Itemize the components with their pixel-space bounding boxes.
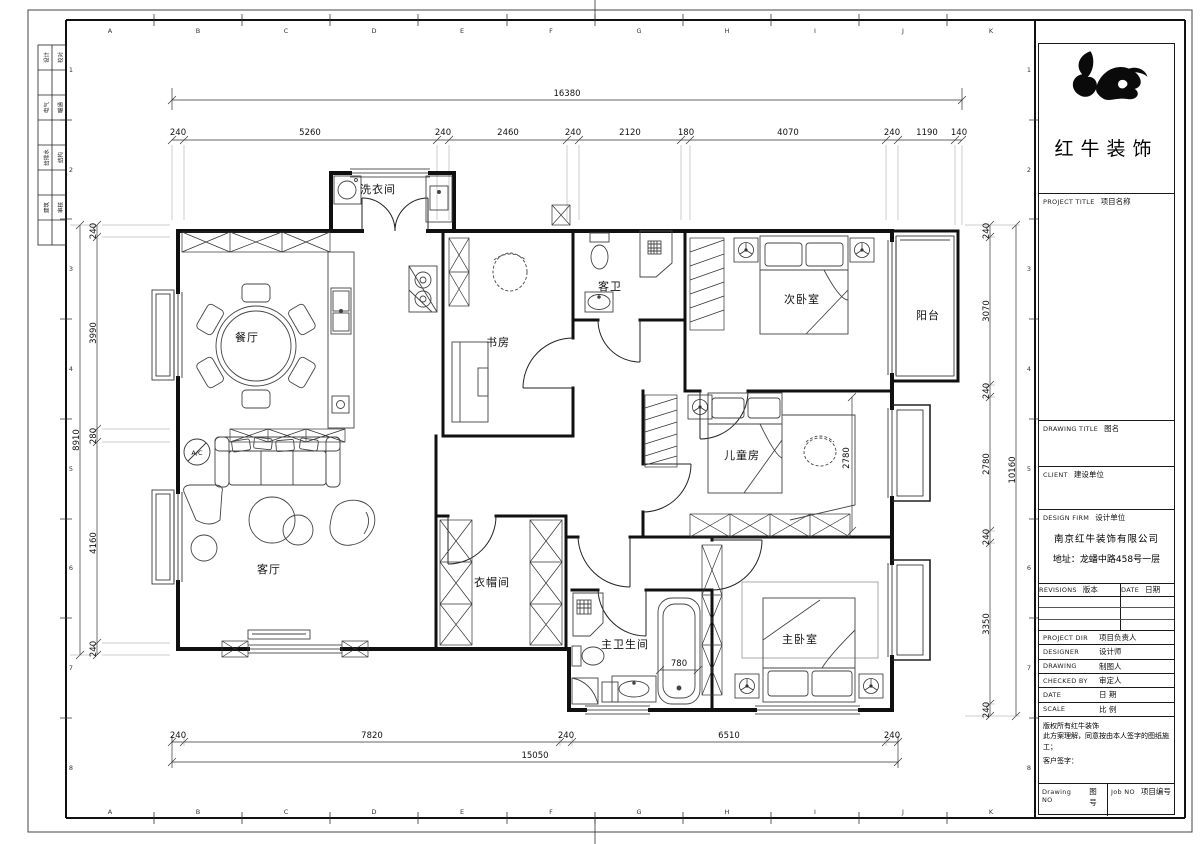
room-label-study: 书房 [486,336,510,349]
dining-chair [195,284,316,408]
grid-letter: F [549,808,553,816]
dim-left-seg: 280 [89,428,99,444]
window-left-lower [152,490,182,584]
signoff-label: 暖通 [57,102,65,114]
grid-letters-top: A B C D E F G H I J K [108,27,994,35]
bay-window-children [888,405,930,501]
children-chair [804,436,836,466]
grid-number: 1 [69,66,73,74]
job-no-en: Job NO [1111,788,1135,796]
dim-top-seg: 140 [951,128,967,138]
info-label-cn: 制图人 [1099,661,1122,672]
signoff-label: 电气 [43,102,51,114]
info-row-date: DATE 日 期 [1039,688,1174,702]
job-no-cn: 项目编号 [1141,786,1171,797]
study-desk [452,342,488,422]
title-block: 红牛装饰 PROJECT TITLE 项目名称 DRAWING TITLE 图名… [1038,43,1175,815]
brand-name: 红牛装饰 [1054,134,1158,161]
grid-number: 6 [1027,564,1031,572]
grid-number: 8 [1027,764,1031,772]
signoff-strip: 设计 校对 电气 暖通 给排水 结构 建筑 审核 [38,45,66,245]
grid-number: 7 [1027,664,1031,672]
grid-letter: I [814,808,816,816]
room-label-cloakroom: 衣帽间 [474,575,510,589]
second-bedroom-bed [760,236,848,334]
ceiling-lamp-icon [850,238,874,262]
sofa [215,437,340,487]
coffee-tables [249,497,313,545]
info-row-designer: DESIGNER 设计师 [1039,645,1174,659]
dim-bottom-seg: 240 [884,731,900,741]
dim-left-total: 8910 [72,429,82,451]
door-laundry-double [362,198,428,231]
dim-left-seg: 3990 [89,322,99,344]
info-label-en: DATE [1043,691,1099,699]
revisions-en: REVISIONS [1039,586,1077,594]
grid-letter: J [901,27,904,35]
info-row-scale: SCALE 比 例 [1039,703,1174,717]
revisions-table: REVISIONS 版本 DATE 日期 [1039,584,1174,631]
room-label-master-bedroom: 主卧室 [782,632,818,646]
info-label-cn: 项目负责人 [1099,632,1137,643]
wardrobe-second-bedroom [690,238,724,330]
grid-number: 6 [69,564,73,572]
info-row-project-dir: PROJECT DIR 项目负责人 [1039,631,1174,645]
grid-letter: H [725,27,730,35]
info-label-en: SCALE [1043,705,1099,713]
door-children-room [643,464,691,512]
lounge-chair [330,500,375,545]
grid-letter: A [108,808,113,816]
dim-left-seg: 4160 [89,532,99,554]
design-firm-cn: 设计单位 [1095,512,1125,523]
door-guest-bath [598,320,640,362]
dining-table [195,284,316,408]
design-firm-en: DESIGN FIRM [1043,514,1089,522]
grid-letters-bottom: A B C D E F G H I J K [108,808,994,816]
grid-number: 3 [69,265,73,273]
drawing-no-cn: 图号 [1089,786,1104,808]
info-label-en: PROJECT DIR [1043,634,1099,642]
dining-top-cabinets [182,232,330,252]
info-label-en: DESIGNER [1043,648,1099,656]
room-label-guest-bath: 客卫 [598,279,622,293]
dim-top-seg: 4070 [777,128,799,138]
study-chair [493,253,527,291]
door-hall-corridor [578,537,630,587]
grid-letter: G [636,27,641,35]
signoff-label: 结构 [57,152,65,164]
grid-number: 2 [69,166,73,174]
grid-letter: B [196,808,200,816]
drawing-title-cn: 图名 [1104,423,1119,434]
window-masterbath-south [585,706,650,714]
copyright-line-1: 版权所有红牛装饰 [1043,721,1170,732]
revision-row [1039,597,1174,608]
grid-letter: C [284,27,289,35]
date-col-en: DATE [1121,586,1139,594]
client-en: CLIENT [1043,471,1068,479]
window-left-upper [152,290,182,380]
ceiling-lamp-icon [859,674,883,698]
title-block-logo-section: 红牛装饰 [1039,44,1174,194]
drawing-number-section: Drawing NO 图号 Job NO 项目编号 [1039,784,1174,816]
copyright-section: 版权所有红牛装饰 此方案理解，同意按由本人签字的图纸施工； 客户签字： [1039,717,1174,784]
signoff-label: 审核 [57,202,65,214]
dim-children-depth: 2780 [842,447,852,469]
wardrobe-children [645,395,677,467]
dim-top-seg: 240 [170,128,186,138]
study-bookshelf [449,238,469,306]
grid-letter: G [636,808,641,816]
company-address: 地址：龙蟠中路458号一层 [1039,552,1174,565]
info-label-cn: 日 期 [1099,689,1116,700]
room-label-master-bath: 主卫生间 [601,637,649,651]
date-col-cn: 日期 [1145,584,1160,595]
dimensions-inner: 2780 780 [656,393,856,674]
dim-right-total: 10160 [1008,456,1018,483]
grid-number: 2 [1027,166,1031,174]
dim-bottom-seg: 7820 [361,731,383,741]
door-master-bath [598,590,646,636]
revisions-cn: 版本 [1083,584,1098,595]
grid-letter: K [989,27,994,35]
info-label-cn: 设计师 [1099,646,1122,657]
grid-letter: D [371,27,376,35]
window-master-south [755,706,860,714]
kitchen-peninsula [328,252,354,428]
door-master-bedroom [712,540,762,590]
info-label-en: CHECKED BY [1043,677,1099,685]
dimensions-top: 16380 240 5260 240 2460 240 2120 180 407… [168,88,967,225]
floorplan-svg: A B C D E F G H I J K A B C D E F G H I … [0,0,1200,844]
dim-tub: 780 [671,659,687,669]
dim-bottom-seg: 6510 [718,731,740,741]
dim-top-seg: 2460 [497,128,519,138]
grid-number: 4 [1027,365,1031,373]
dim-right-seg: 240 [982,529,992,545]
signoff-label: 设计 [43,52,51,64]
cloakroom-closet-left [440,520,472,645]
grid-letter: F [549,27,553,35]
room-label-second-bedroom: 次卧室 [784,292,820,306]
info-row-checked-by: CHECKED BY 审定人 [1039,674,1174,688]
copyright-line-3: 客户签字： [1043,756,1170,767]
project-title-en: PROJECT TITLE [1043,198,1095,206]
dim-top-seg: 1190 [916,128,938,138]
drawing-sheet: A B C D E F G H I J K A B C D E F G H I … [0,0,1200,844]
room-label-children-room: 儿童房 [724,448,760,462]
room-label-living: 客厅 [257,562,281,576]
armchair [184,485,223,524]
signoff-label: 给排水 [43,149,51,166]
grid-letter: B [196,27,200,35]
client-section: CLIENT 建设单位 [1039,467,1174,510]
ceiling-lamp-icon [735,674,759,698]
gas-stove [409,266,437,312]
grid-letter: I [814,27,816,35]
closet-row-children [690,514,850,537]
dim-right-seg: 2780 [982,453,992,475]
window-living-south [248,645,342,653]
dim-right-seg: 3070 [982,300,992,322]
room-label-laundry: 洗衣间 [360,182,396,196]
project-title-cn: 项目名称 [1101,196,1131,207]
grid-letter: E [460,27,464,35]
ac-label: A/C [191,449,203,457]
door-study [523,338,573,388]
project-title-section: PROJECT TITLE 项目名称 [1039,194,1174,421]
sheet-frame [28,0,1192,844]
flue-shaft [552,205,570,225]
dim-bottom-seg: 240 [170,731,186,741]
dim-left-seg: 240 [89,641,99,657]
dim-top-seg: 5260 [299,128,321,138]
dim-right-seg: 240 [982,383,992,399]
dimensions-bottom: 240 7820 240 6510 240 15050 [168,731,902,768]
design-firm-section: DESIGN FIRM 设计单位 南京红牛装饰有限公司 地址：龙蟠中路458号一… [1039,510,1174,584]
room-label-balcony: 阳台 [916,308,940,322]
grid-letter: H [725,808,730,816]
pouf [191,535,217,561]
room-label-dining: 餐厅 [235,330,259,344]
grid-letter: A [108,27,113,35]
dim-left-seg: 240 [89,223,99,239]
ceiling-lamp-icon [734,238,758,262]
guest-bath-fixtures [585,231,672,312]
grid-number: 1 [1027,66,1031,74]
dimensions-right: 10160 240 3070 240 2780 240 3350 240 [965,221,1020,720]
dim-right-seg: 240 [982,223,992,239]
cloakroom-closet-right [530,520,562,645]
grid-number: 5 [69,465,73,473]
grid-number: 5 [1027,465,1031,473]
signoff-label: 建筑 [43,202,51,214]
bathtub-icon [658,598,700,704]
dim-bottom-seg: 240 [558,731,574,741]
window-laundry-north [350,169,430,177]
dim-top-seg: 2120 [619,128,641,138]
grid-number: 8 [69,764,73,772]
grid-number: 3 [1027,265,1031,273]
grid-letter: E [460,808,464,816]
window-balcony-inner [888,240,896,375]
info-label-en: DRAWING [1043,662,1099,670]
info-label-cn: 比 例 [1099,704,1116,715]
dim-bottom-total: 15050 [521,751,548,761]
company-logo-icon [1061,44,1153,132]
tv-console [248,630,310,639]
info-row-drawing: DRAWING 制图人 [1039,660,1174,674]
walls [178,173,958,710]
bay-window-master [888,560,930,660]
client-cn: 建设单位 [1074,469,1104,480]
dim-top-seg: 240 [884,128,900,138]
grid-number: 7 [69,664,73,672]
dim-right-seg: 3350 [982,613,992,635]
info-label-cn: 审定人 [1099,675,1122,686]
dimensions-left: 8910 240 3990 280 4160 240 [70,221,170,659]
grid-letter: C [284,808,289,816]
dim-top-seg: 240 [565,128,581,138]
drawing-title-section: DRAWING TITLE 图名 [1039,421,1174,467]
dim-top-seg: 180 [678,128,694,138]
grid-letter: D [371,808,376,816]
grid-number: 4 [69,365,73,373]
drawing-title-en: DRAWING TITLE [1043,425,1098,433]
window-balcony-rail [896,236,954,376]
grid-letter: J [901,808,904,816]
signoff-label: 校对 [57,52,65,64]
dim-top-seg: 240 [435,128,451,138]
dim-right-seg: 240 [982,702,992,718]
grid-letter: K [989,808,994,816]
company-name: 南京红牛装饰有限公司 [1039,531,1174,545]
drawing-no-en: Drawing NO [1042,788,1083,804]
copyright-line-2: 此方案理解，同意按由本人签字的图纸施工； [1043,731,1170,752]
revision-row [1039,620,1174,630]
revision-row [1039,608,1174,619]
dim-top-total: 16380 [553,89,580,99]
